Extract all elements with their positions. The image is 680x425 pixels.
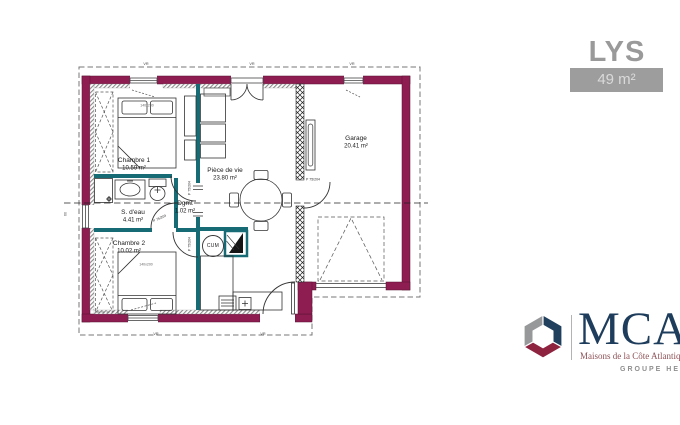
garage-door-swing — [320, 218, 382, 280]
door-label: P 75/204 — [188, 181, 192, 195]
logo-group: GROUPE HEXAÔM — [620, 366, 680, 373]
chair — [254, 171, 268, 180]
shutter-label: VR — [153, 332, 158, 337]
wardrobe-chambre1 — [96, 92, 114, 172]
bedside-unit — [185, 140, 197, 160]
chambre1-furniture — [96, 92, 226, 172]
area-badge: 49 m² — [570, 68, 663, 92]
dining-table — [240, 179, 282, 221]
kitchen-counter — [233, 292, 282, 310]
french-window — [231, 78, 263, 83]
bed-size-label: 140x200 — [139, 263, 152, 267]
wc-tank — [149, 179, 166, 187]
page: Chambre 1 10.59 m² S. d'eau 4.41 m² Dgmt… — [0, 0, 680, 425]
room-label-chambre-2: Chambre 2 10.02 m² — [113, 239, 145, 255]
room-label-dgmt: Dgmt 1.02 m² — [175, 199, 195, 215]
door-label: P 75/204 — [306, 178, 320, 182]
room-label-garage: Garage 20.41 m² — [344, 134, 368, 150]
kitchen-counter — [201, 256, 234, 310]
bedside-unit — [185, 96, 197, 136]
room-label-piece-de-vie: Pièce de vie 23.80 m² — [207, 166, 242, 182]
dimension-label: 60 — [64, 212, 68, 216]
living-storage — [201, 94, 226, 122]
garage-dividing-wall — [296, 84, 304, 282]
garage-door-panel — [318, 217, 384, 281]
plan-title: LYS — [557, 36, 677, 69]
door-label: P 75/204 — [188, 237, 192, 251]
chair — [230, 193, 239, 207]
pillow — [151, 299, 173, 311]
roof-outline — [79, 67, 420, 335]
wardrobe-chambre2 — [96, 238, 114, 312]
bathroom-fixtures — [95, 179, 167, 203]
sink — [120, 183, 140, 196]
shutter-label: VR — [249, 62, 254, 67]
shutter-label: VR — [260, 332, 265, 337]
logo-separator — [571, 315, 572, 360]
logo-brand: MCA — [578, 306, 680, 353]
living-storage — [201, 124, 226, 142]
shutter-label: VR — [349, 62, 354, 67]
water-heater-label: CUM — [207, 243, 219, 249]
shutter-marks — [131, 90, 360, 310]
wall-cupboard — [204, 88, 230, 96]
shutter-label: VR — [143, 62, 148, 67]
room-label-chambre-1: Chambre 1 10.59 m² — [118, 156, 150, 172]
room-label-sdeau: S. d'eau 4.41 m² — [121, 208, 145, 224]
mca-cube-logo-icon — [521, 313, 565, 360]
living-storage — [201, 144, 226, 158]
door-garage — [304, 182, 330, 208]
chair — [283, 193, 292, 207]
pillow — [151, 101, 173, 114]
bed-size-label: 140x200 — [140, 104, 153, 108]
garage-radiator — [306, 120, 315, 170]
entry-door-leaf — [292, 283, 295, 314]
garage-door-sill — [316, 284, 386, 288]
chair — [254, 222, 268, 231]
door-chambre2 — [173, 232, 198, 257]
logo-tagline: Maisons de la Côte Atlantique — [580, 351, 680, 361]
